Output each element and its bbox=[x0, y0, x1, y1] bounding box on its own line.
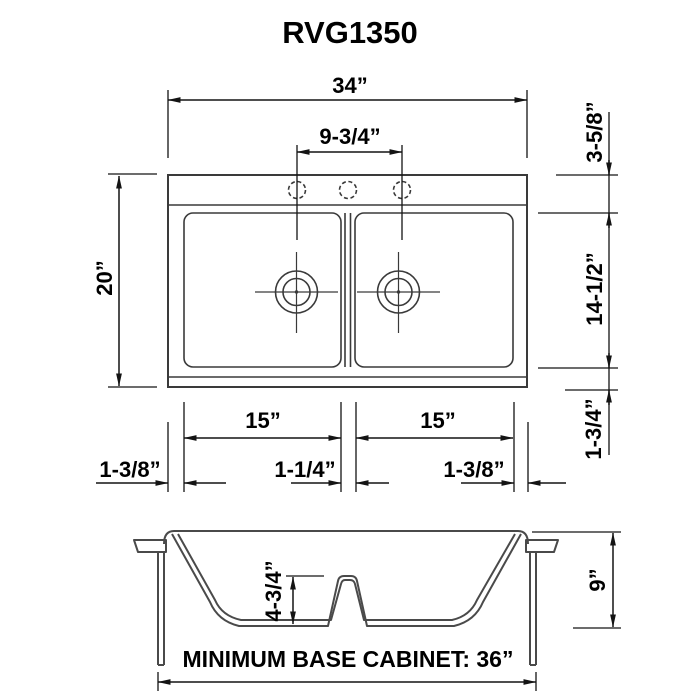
sink-top-view-outline bbox=[168, 175, 527, 387]
dim-label: 9” bbox=[585, 568, 610, 591]
drain-crosshair bbox=[255, 252, 338, 333]
dim-overall-width: 34” bbox=[168, 73, 527, 100]
dim-label-front-rim: 1-3/4” bbox=[581, 398, 606, 459]
dim-right-chain: 3-5/8” 14-1/2” 1-3/4” bbox=[581, 101, 609, 459]
faucet-hole-center bbox=[340, 182, 357, 199]
dim-label: 1-3/8” bbox=[99, 457, 160, 482]
dim-right-rim: 1-3/8” bbox=[443, 457, 566, 483]
dim-label: 1-3/8” bbox=[443, 457, 504, 482]
dim-faucet-spacing: 9-3/4” bbox=[297, 124, 402, 152]
countertop-left bbox=[134, 540, 166, 552]
bowl-divider-lines bbox=[345, 213, 351, 367]
sink-spec-sheet: RVG1350 34” bbox=[0, 0, 700, 700]
dim-overall-depth: 20” bbox=[92, 176, 119, 386]
right-bowl bbox=[355, 213, 513, 367]
sink-rim-profile bbox=[164, 531, 528, 544]
diagram-title: RVG1350 bbox=[282, 15, 418, 50]
top-view: 34” 9-3/4” 20” 3-5/8” 14-1/2” 1-3/4” 15” bbox=[92, 73, 618, 492]
dim-label: 1-1/4” bbox=[274, 457, 335, 482]
side-view: 4-3/4” 9” MINIMUM BASE CABINET: 36” bbox=[134, 531, 621, 691]
countertop-right bbox=[526, 540, 558, 552]
dim-label: 20” bbox=[92, 260, 117, 295]
dim-label: 9-3/4” bbox=[319, 124, 380, 149]
dim-divider-width: 1-1/4” bbox=[274, 457, 389, 483]
dim-label: 34” bbox=[332, 73, 367, 98]
rim-deck-lines bbox=[168, 205, 527, 377]
sink-dimension-diagram: RVG1350 34” bbox=[0, 0, 700, 700]
dim-label: 15” bbox=[420, 408, 455, 433]
dim-label: 15” bbox=[245, 408, 280, 433]
drain-left bbox=[255, 252, 338, 333]
dim-bowl-depth: 9” bbox=[585, 533, 613, 627]
dim-right-bowl-width: 15” bbox=[356, 408, 513, 438]
drain-right bbox=[357, 252, 440, 333]
dim-left-rim: 1-3/8” bbox=[96, 457, 226, 483]
drain-crosshair bbox=[357, 252, 440, 333]
dim-min-base-cabinet: MINIMUM BASE CABINET: 36” bbox=[158, 646, 536, 682]
cabinet-note-label: MINIMUM BASE CABINET: 36” bbox=[183, 646, 514, 672]
dim-label: 4-3/4” bbox=[261, 560, 286, 621]
dim-divider-height: 4-3/4” bbox=[261, 560, 293, 624]
dim-left-bowl-width: 15” bbox=[184, 408, 341, 438]
dim-label-deck-depth: 3-5/8” bbox=[582, 101, 607, 162]
dim-label-bowl-front-back: 14-1/2” bbox=[582, 252, 607, 325]
